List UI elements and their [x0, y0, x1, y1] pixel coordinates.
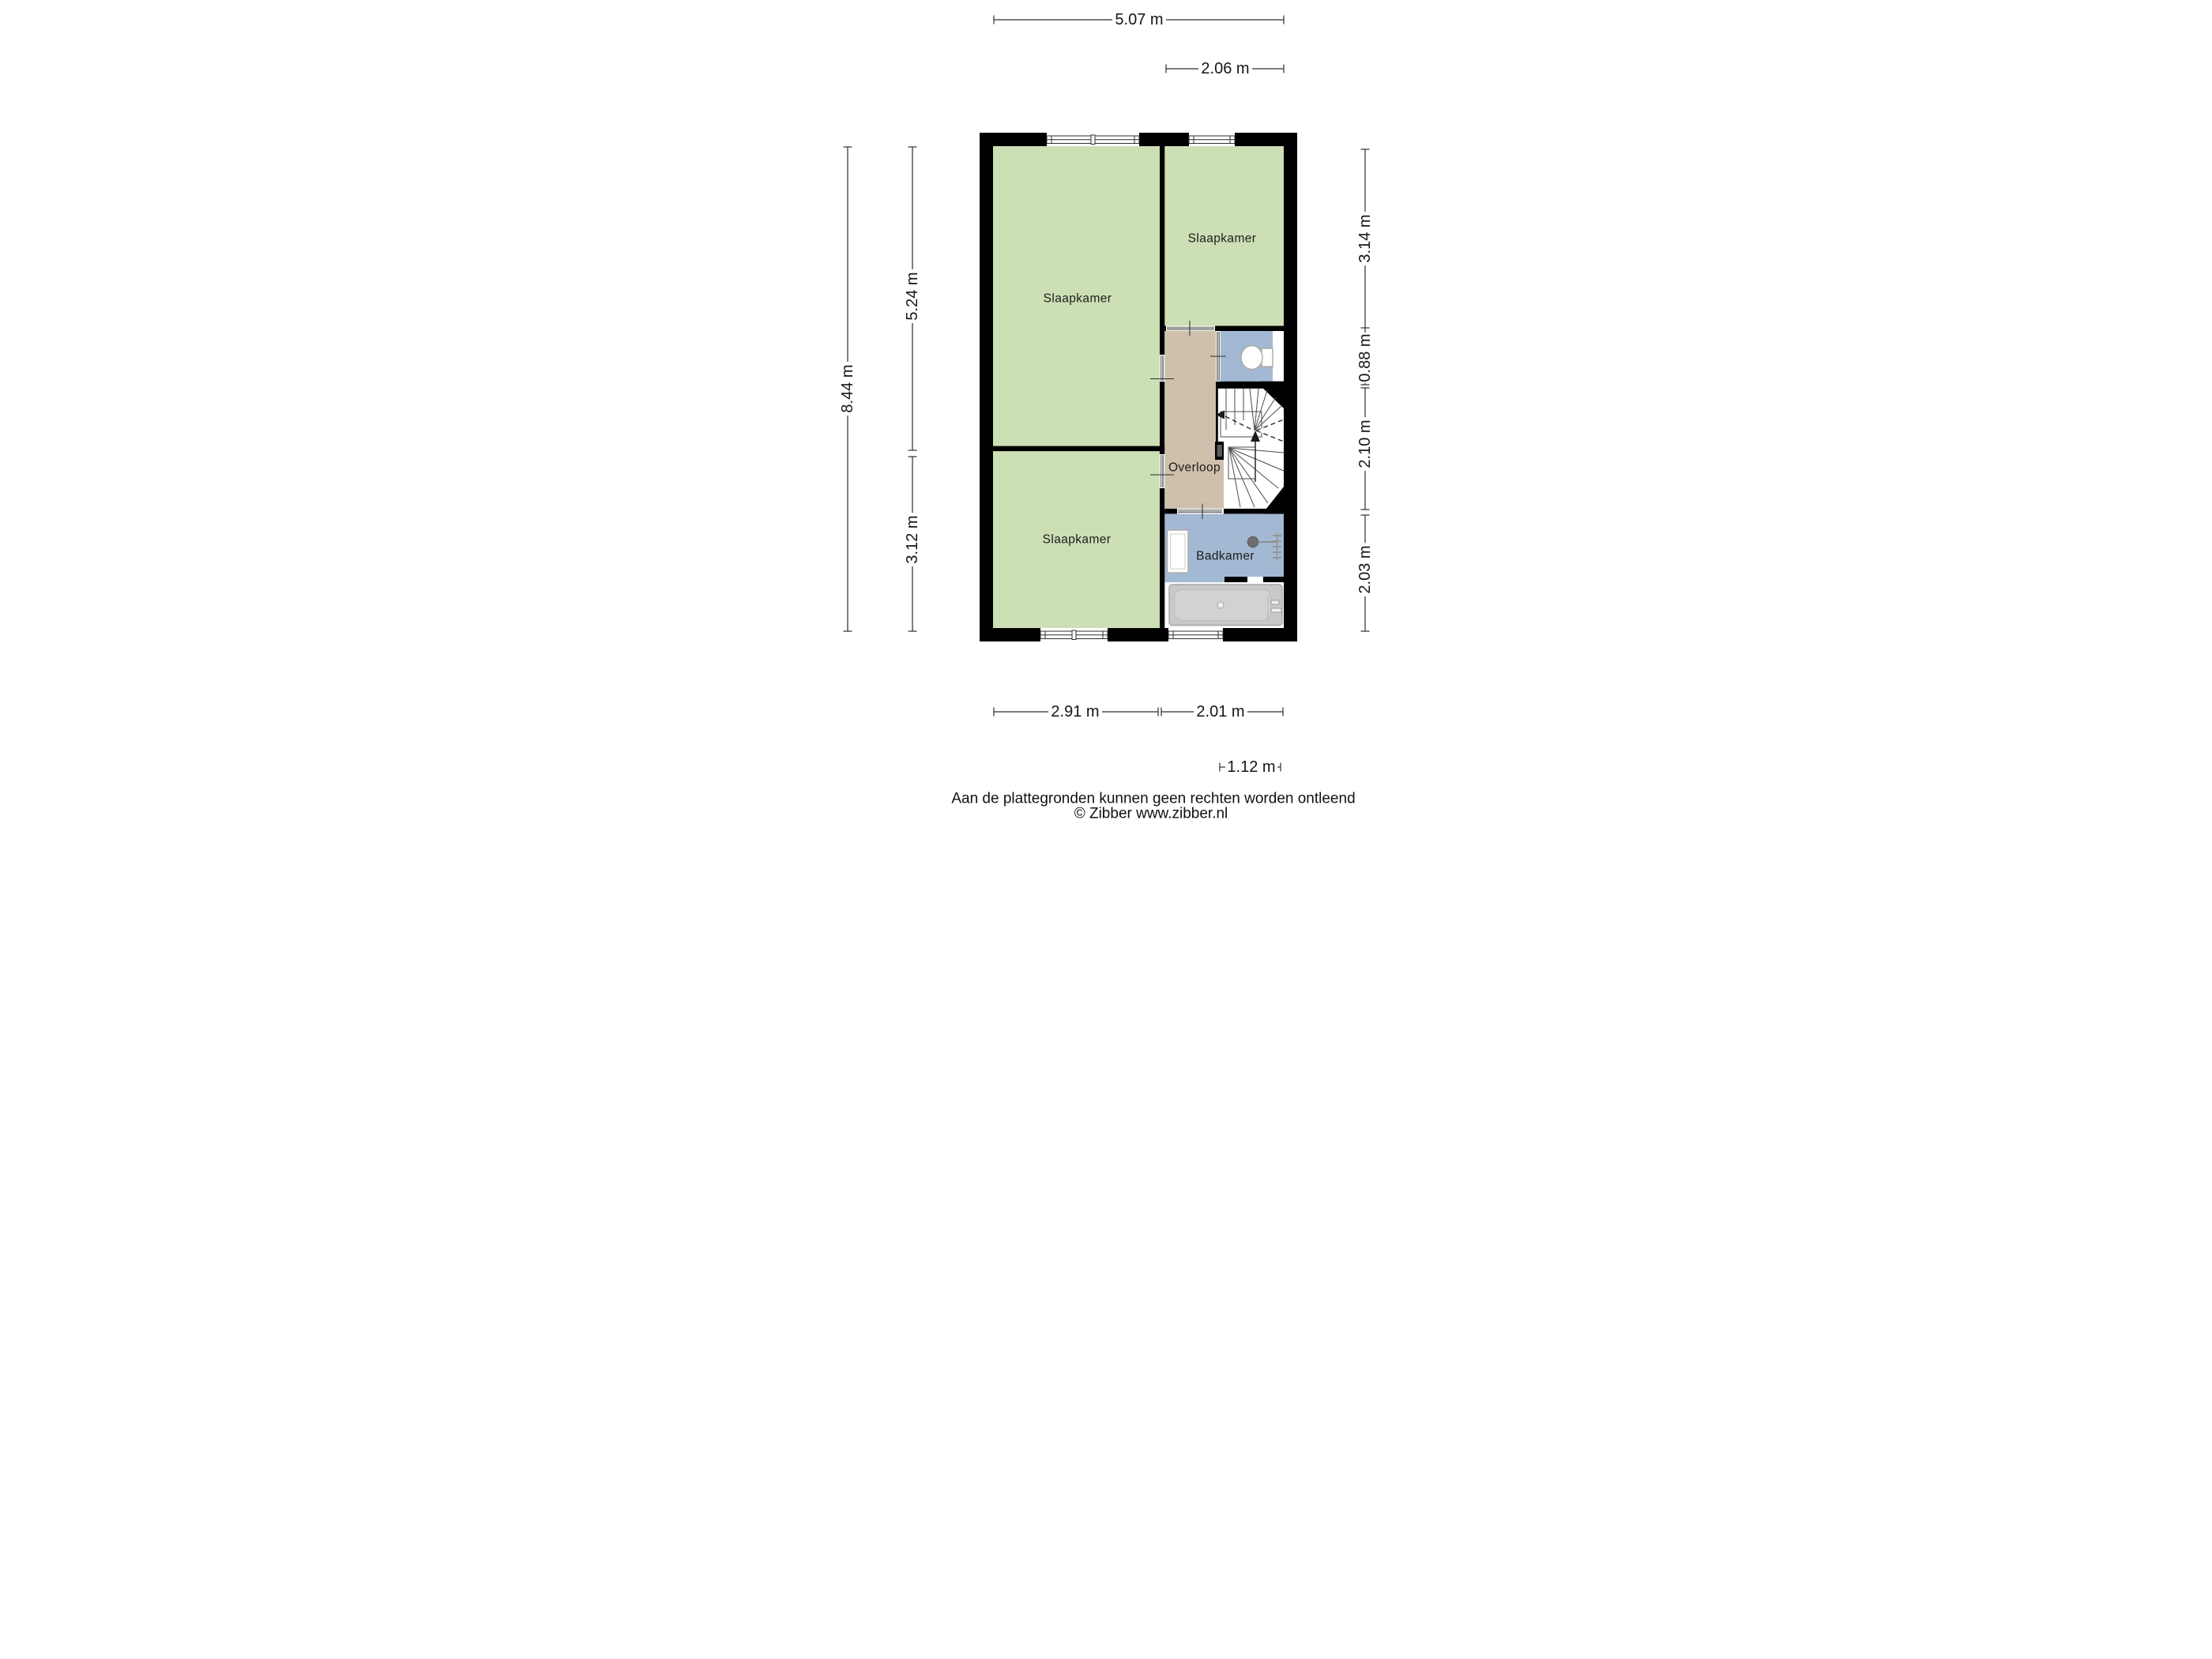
- dimension-right-upper: 3.14 m: [1356, 149, 1374, 328]
- dimension-right-toilet: 0.88 m: [1356, 328, 1374, 385]
- svg-text:3.12 m: 3.12 m: [904, 515, 921, 563]
- window-badkamer: [1168, 628, 1223, 641]
- floor-plan-page: Slaapkamer Slaapkamer Slaapkamer Overloo…: [553, 0, 1659, 829]
- room-label-badkamer: Badkamer: [1196, 550, 1255, 563]
- dimension-right-stairs: 2.10 m: [1356, 388, 1374, 510]
- svg-text:3.14 m: 3.14 m: [1356, 214, 1374, 262]
- footer: Aan de plattegronden kunnen geen rechten…: [951, 791, 1355, 822]
- dimension-bottom-left: 2.91 m: [994, 703, 1158, 720]
- toilet-shelf: [1273, 331, 1284, 382]
- svg-text:0.88 m: 0.88 m: [1356, 333, 1374, 382]
- dimension-top-right: 2.06 m: [1166, 60, 1284, 77]
- duct: [1217, 445, 1223, 457]
- room-label-slaapkamer-groot: Slaapkamer: [1044, 292, 1112, 306]
- room-label-overloop: Overloop: [1168, 461, 1221, 475]
- window-slaapkamer-groot: [1047, 133, 1139, 146]
- svg-text:1.12 m: 1.12 m: [1227, 758, 1275, 776]
- room-label-slaapkamer-linksonder: Slaapkamer: [1043, 533, 1112, 547]
- window-slaapkamer-rechtsboven: [1189, 133, 1235, 146]
- toilet-icon: [1241, 346, 1273, 370]
- svg-text:2.03 m: 2.03 m: [1356, 545, 1374, 593]
- room-label-slaapkamer-rechtsboven: Slaapkamer: [1188, 232, 1257, 246]
- dimension-bottom-right: 2.01 m: [1161, 703, 1283, 720]
- svg-text:2.10 m: 2.10 m: [1356, 419, 1374, 468]
- wall-bedroom-divider: [993, 446, 1164, 452]
- svg-text:2.91 m: 2.91 m: [1051, 703, 1099, 720]
- window-slaapkamer-linksonder: [1040, 628, 1108, 641]
- wall-partition-vertical: [1160, 146, 1164, 628]
- floor-plan: Slaapkamer Slaapkamer Slaapkamer Overloo…: [553, 0, 1659, 829]
- wall-bottom: [980, 628, 1297, 641]
- footer-credit: © Zibber www.zibber.nl: [1074, 806, 1228, 822]
- svg-text:8.44 m: 8.44 m: [839, 364, 856, 412]
- dimension-left-upper: 5.24 m: [904, 147, 921, 450]
- svg-text:2.01 m: 2.01 m: [1196, 703, 1244, 720]
- dimension-top-total: 5.07 m: [994, 11, 1284, 28]
- footer-disclaimer: Aan de plattegronden kunnen geen rechten…: [951, 791, 1355, 807]
- wall-left: [980, 133, 993, 641]
- room-overloop: [1165, 331, 1224, 509]
- bath-screen-opening: [1247, 577, 1263, 582]
- wall-bath-top-stub: [1164, 509, 1177, 514]
- stairwell-floor: [1218, 389, 1285, 509]
- svg-text:2.06 m: 2.06 m: [1201, 60, 1249, 77]
- dimension-left-total: 8.44 m: [839, 147, 856, 631]
- wall-right: [1284, 133, 1297, 641]
- bathtub-icon: [1169, 585, 1282, 626]
- dimension-right-bath: 2.03 m: [1356, 515, 1374, 631]
- dimension-bottom-inset: 1.12 m: [1220, 758, 1281, 776]
- dimension-left-lower: 3.12 m: [904, 457, 921, 631]
- svg-text:5.24 m: 5.24 m: [904, 272, 921, 320]
- washbasin-icon: [1168, 530, 1189, 573]
- svg-text:5.07 m: 5.07 m: [1115, 11, 1163, 28]
